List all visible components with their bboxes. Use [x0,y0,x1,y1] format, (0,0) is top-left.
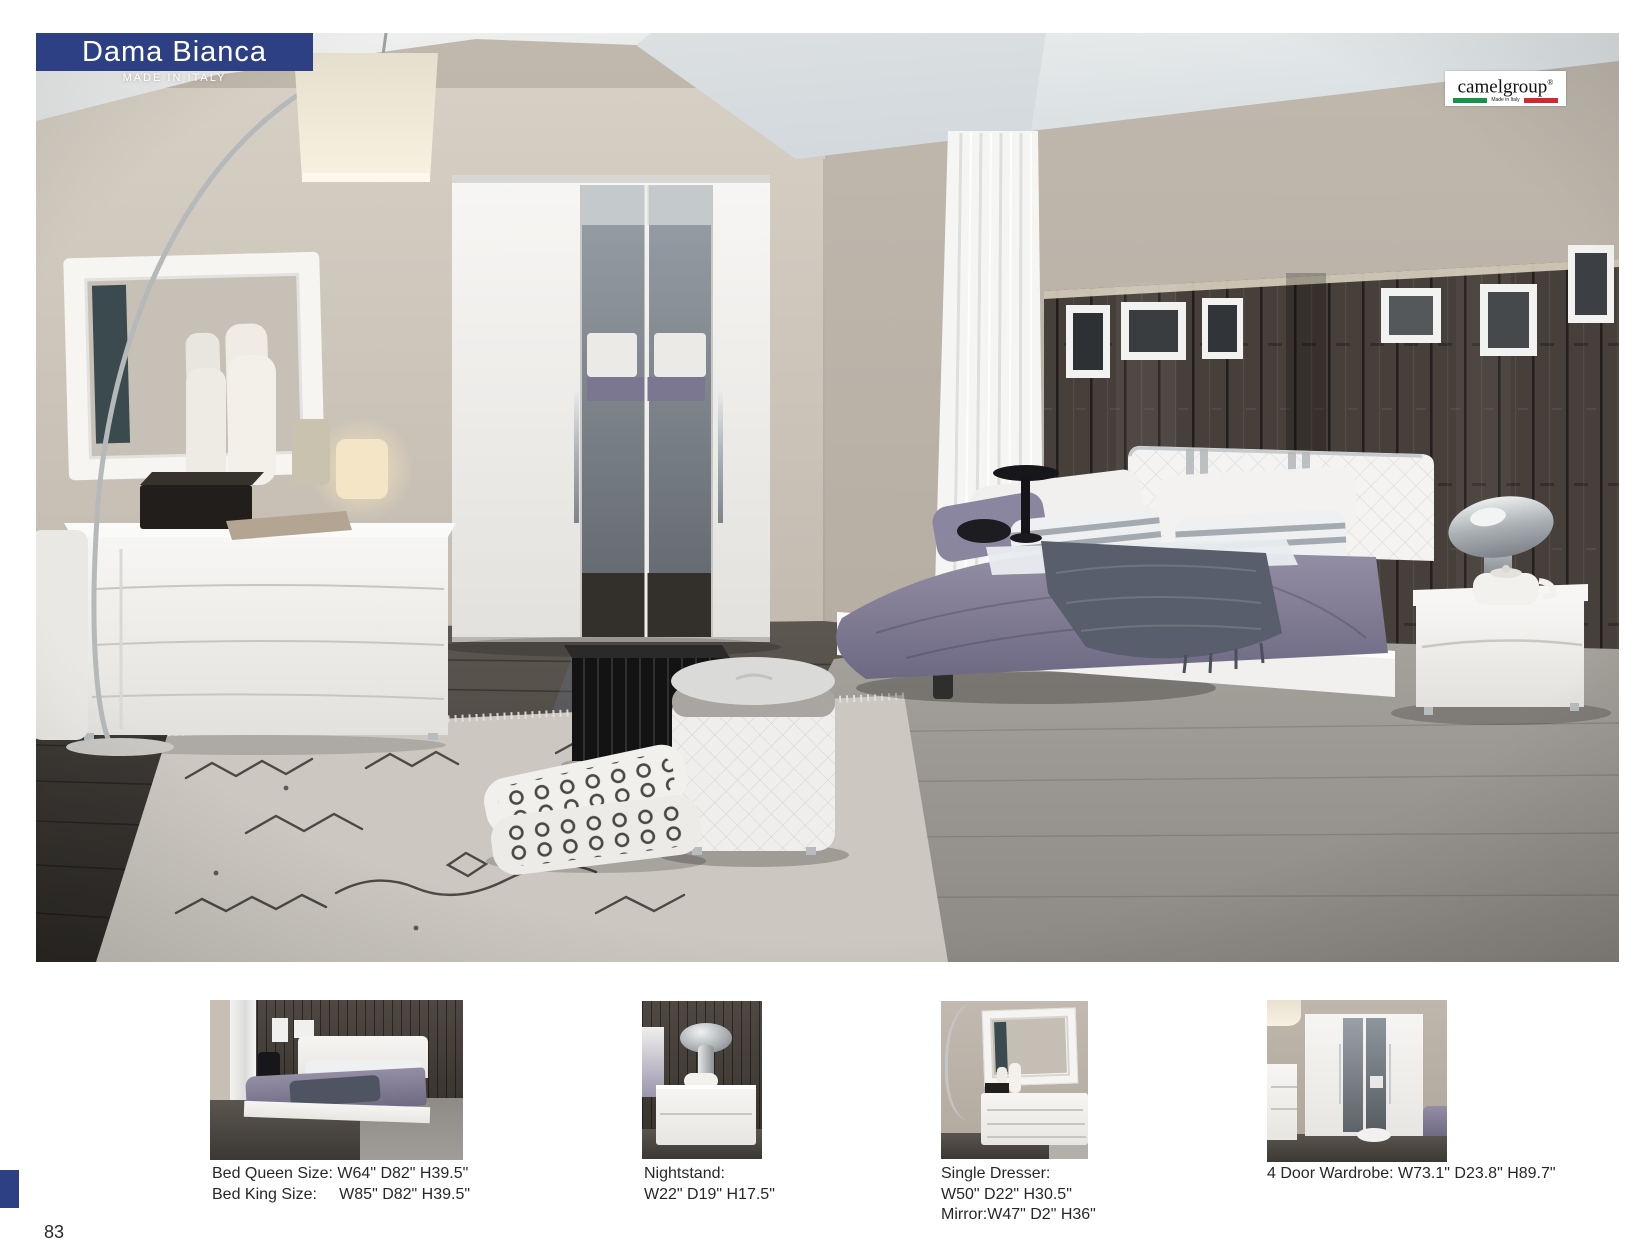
made-in-italy-label: MADE IN ITALY [36,72,313,84]
thumb-drawer-line [987,1109,1083,1111]
caption-line: Bed King Size: W85" D82" H39.5" [212,1185,470,1206]
thumb-top-slab [656,1085,756,1089]
hero-photo [36,33,1619,962]
caption-bed: Bed Queen Size: W64" D82" H39.5" Bed Kin… [212,1164,470,1205]
series-banner: Dama Bianca [36,33,313,71]
thumbnail-bed [210,1000,463,1160]
caption-wardrobe: 4 Door Wardrobe: W73.1" D23.8" H89.7" [1267,1164,1556,1185]
caption-line: W50" D22" H30.5" [941,1185,1096,1206]
flag-green-bar [1453,98,1487,103]
thumb-drawer-line [1271,1108,1297,1110]
flag-red-bar [1524,98,1558,103]
brand-tagline: Made in Italy [1491,97,1519,103]
caption-nightstand: Nightstand: W22" D19" H17.5" [644,1164,775,1205]
caption-line: Mirror:W47" D2" H36" [941,1205,1096,1226]
thumb-mirror-bed [1370,1076,1383,1088]
thumb-dresser [981,1093,1088,1145]
bedroom-scene [36,33,1619,962]
thumb-handle [1389,1044,1391,1104]
thumb-vase [1009,1063,1021,1093]
thumb-mirror-door [1343,1018,1363,1132]
caption-line: Nightstand: [644,1164,775,1185]
thumb-bed-corner [1423,1106,1447,1136]
thumb-drawer-line [1271,1086,1297,1088]
caption-line: Bed Queen Size: W64" D82" H39.5" [212,1164,470,1185]
italy-flag-strip: Made in Italy [1453,97,1557,103]
page-number: 83 [44,1222,64,1243]
photo-vignette [36,33,1619,962]
series-title: Dama Bianca [82,36,267,69]
brand-name: camelgroup® [1458,74,1554,96]
thumb-drawer-line [987,1123,1085,1125]
brand-logo: camelgroup® Made in Italy [1445,71,1566,106]
thumb-wall [210,1000,232,1110]
thumb-mirror-door [1366,1018,1386,1132]
thumb-dresser-edge [1267,1064,1297,1140]
thumb-nightstand [656,1085,756,1145]
thumb-lamp-shade [1267,1000,1301,1026]
thumb-handle [1339,1044,1341,1104]
page-edge-tab [0,1170,19,1208]
registered-mark: ® [1547,78,1553,87]
caption-line: W22" D19" H17.5" [644,1185,775,1206]
thumb-wardrobe [1305,1014,1423,1136]
thumb-drawer-line [660,1113,752,1115]
thumb-frame [272,1018,288,1042]
thumb-mirror-art [994,1022,1008,1072]
thumbnail-nightstand [642,1001,762,1159]
thumbnail-dresser [941,1001,1088,1159]
caption-line: Single Dresser: [941,1164,1096,1185]
thumbnail-wardrobe [1267,1000,1447,1162]
thumb-drawer-line [987,1136,1086,1138]
thumb-round-table [1357,1128,1391,1142]
caption-dresser: Single Dresser: W50" D22" H30.5" Mirror:… [941,1164,1096,1226]
catalog-page: Dama Bianca MADE IN ITALY camelgroup® Ma… [0,0,1634,1256]
caption-line: 4 Door Wardrobe: W73.1" D23.8" H89.7" [1267,1164,1556,1185]
